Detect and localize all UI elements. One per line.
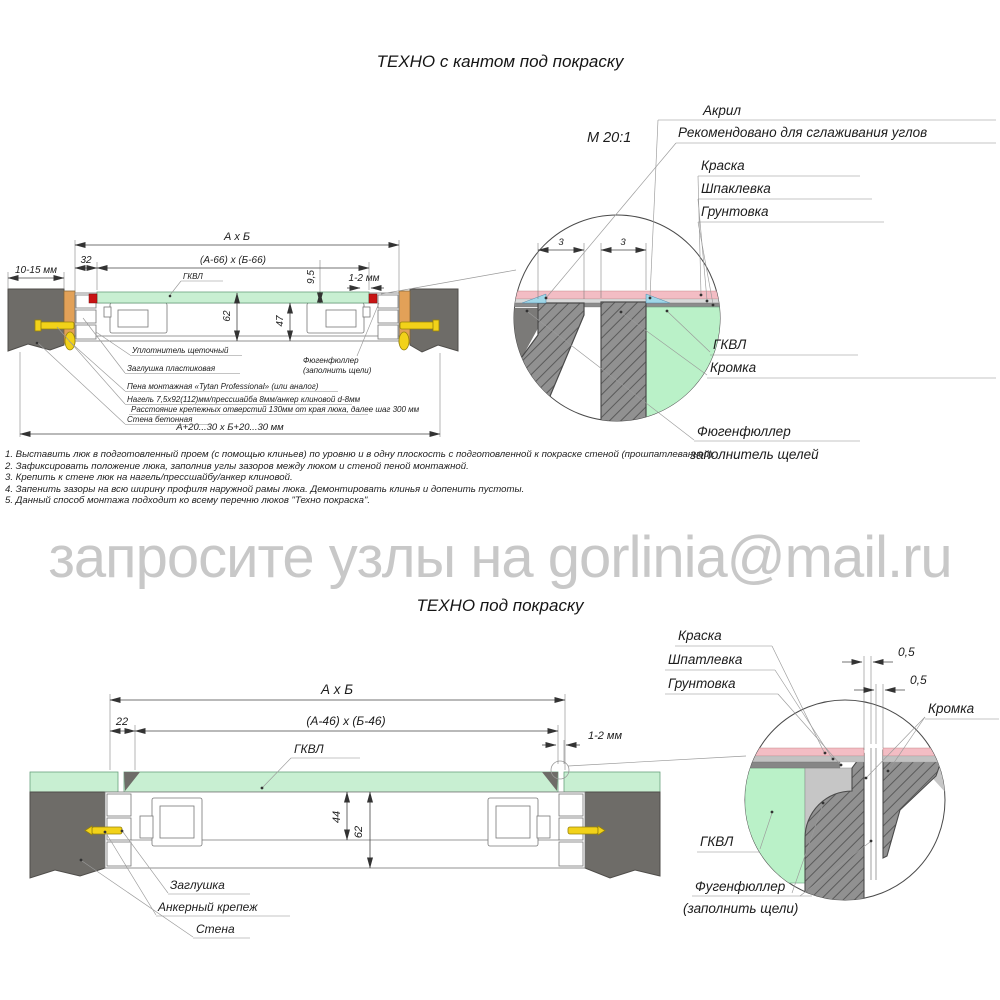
leader-to-bottom-detail (568, 756, 746, 766)
door-edge-section (601, 302, 646, 427)
label-stena-betonnaya: Стена бетонная (127, 415, 193, 424)
gkvl-strip-right (564, 772, 660, 792)
gkvl-strip-left (30, 772, 118, 792)
dim-wall-gap: 10-15 мм (15, 265, 57, 276)
label-bd-gkvl: ГКВЛ (700, 834, 734, 849)
label-uplotnitel: Уплотнитель щеточный (131, 346, 229, 355)
top-detail-content (513, 291, 722, 427)
dim-b-overall: А х Б (320, 682, 353, 697)
label-gruntovka: Грунтовка (701, 204, 769, 219)
label-shpaklevka: Шпаклевка (701, 181, 771, 196)
label-gkvl: ГКВЛ (183, 272, 203, 281)
label-rasstoyanie: Расстояние крепежных отверстий 130мм от … (131, 405, 420, 414)
label-b-anker: Анкерный крепеж (157, 900, 258, 914)
note-line: 5. Данный способ монтажа подходит ко все… (5, 495, 995, 507)
note-line: 2. Зафиксировать положение люка, заполни… (5, 461, 995, 473)
primer-layer-bottom (745, 762, 840, 768)
bottom-section-diagram: А х Б 22 (А-46) х (Б-46) 1-2 мм 44 62 ГК… (30, 682, 746, 938)
label-zaglushka-plast: Заглушка пластиковая (127, 364, 216, 373)
label-bd-fugen-1: Фугенфюллер (695, 879, 786, 894)
scale-label: М 20:1 (587, 130, 631, 146)
bottom-frame-profile (105, 792, 585, 868)
label-pena: Пена монтажная «Tytan Professional» (или… (127, 382, 319, 391)
top-section-diagram: А х Б 32 (А-66) х (Б-66) 10-15 мм 9,5 1-… (8, 231, 516, 437)
dim-inner: (А-66) х (Б-66) (200, 255, 266, 266)
corner-marker-right (369, 294, 377, 303)
paint-layer-bottom-right (883, 748, 945, 756)
label-b-zaglushka: Заглушка (170, 878, 225, 892)
gkvl-block-bottom (745, 768, 805, 883)
dim-depth-total: 62 (222, 310, 233, 322)
label-detail-gkvl: ГКВЛ (713, 337, 747, 352)
top-detail-view: 3 3 М 20:1 Акрил Рекомендовано для сглаж… (513, 103, 996, 462)
dim-b-offset: 22 (115, 716, 128, 728)
label-b-stena: Стена (196, 922, 235, 936)
joint-marker-circle (551, 761, 569, 779)
gkvl-panel (97, 292, 369, 303)
label-akril: Акрил (702, 103, 741, 118)
anchor-left-bottom (85, 826, 122, 835)
dim-panel-thickness: 9,5 (306, 270, 317, 284)
label-kraska: Краска (701, 158, 745, 173)
dim-half-1: 0,5 (898, 645, 915, 659)
label-kromka: Кромка (710, 360, 757, 375)
label-bd-fugen-2: (заполнить щели) (683, 901, 798, 916)
putty-layer-bottom-left (745, 756, 864, 762)
note-line: 1. Выставить люк в подготовленный проем … (5, 449, 995, 461)
dim-3-right: 3 (620, 237, 626, 248)
dim-overall: А х Б (223, 231, 250, 243)
paint-layer-bottom-left (745, 748, 864, 756)
dim-edge-gap: 1-2 мм (349, 273, 380, 284)
label-fugen-2: (заполнить щели) (303, 366, 372, 375)
gkvl-lid-panel (124, 772, 558, 792)
note-line: 3. Крепить к стене люк на нагель/прессша… (5, 472, 995, 484)
label-bd-gruntovka: Грунтовка (668, 676, 736, 691)
installation-notes: 1. Выставить люк в подготовленный проем … (5, 449, 995, 507)
dim-offset: 32 (80, 255, 92, 266)
wall-left-bottom (30, 792, 105, 878)
bottom-detail-view: 0,5 0,5 Краска Шпатлевка Грунтовка Кромк… (665, 628, 999, 916)
dim-b-depth-total: 62 (353, 826, 365, 838)
label-akril-note: Рекомендовано для сглаживания углов (678, 125, 927, 140)
dim-3-left: 3 (558, 237, 564, 248)
bottom-title: ТЕХНО под покраску (0, 596, 1000, 616)
label-bd-kromka: Кромка (928, 701, 975, 716)
note-line: 4. Запенить зазоры на всю ширину профиля… (5, 484, 995, 496)
label-bd-shpatlevka: Шпатлевка (668, 652, 743, 667)
dim-depth-inner: 47 (275, 315, 286, 327)
corner-marker-left (89, 294, 97, 303)
dim-b-inner: (А-46) х (Б-46) (306, 714, 385, 728)
dim-half-2: 0,5 (910, 673, 927, 687)
dim-b-depth-inner: 44 (331, 811, 343, 823)
label-bd-kraska: Краска (678, 628, 722, 643)
dim-b-edge-gap: 1-2 мм (588, 730, 622, 742)
anchor-right-bottom (568, 826, 605, 835)
label-b-gkvl: ГКВЛ (294, 742, 324, 756)
label-detail-fugen-1: Фюгенфюллер (697, 424, 791, 439)
wall-right-bottom (585, 792, 660, 878)
watermark-text: запросите узлы на gorlinia@mail.ru (0, 524, 1000, 591)
label-nagel: Нагель 7,5х92(112)мм/прессшайба 8мм/анке… (127, 395, 361, 404)
label-fugen-1: Фюгенфюллер (303, 356, 359, 365)
drawing-sheet: ТЕХНО с кантом под покраску (0, 0, 1000, 1000)
